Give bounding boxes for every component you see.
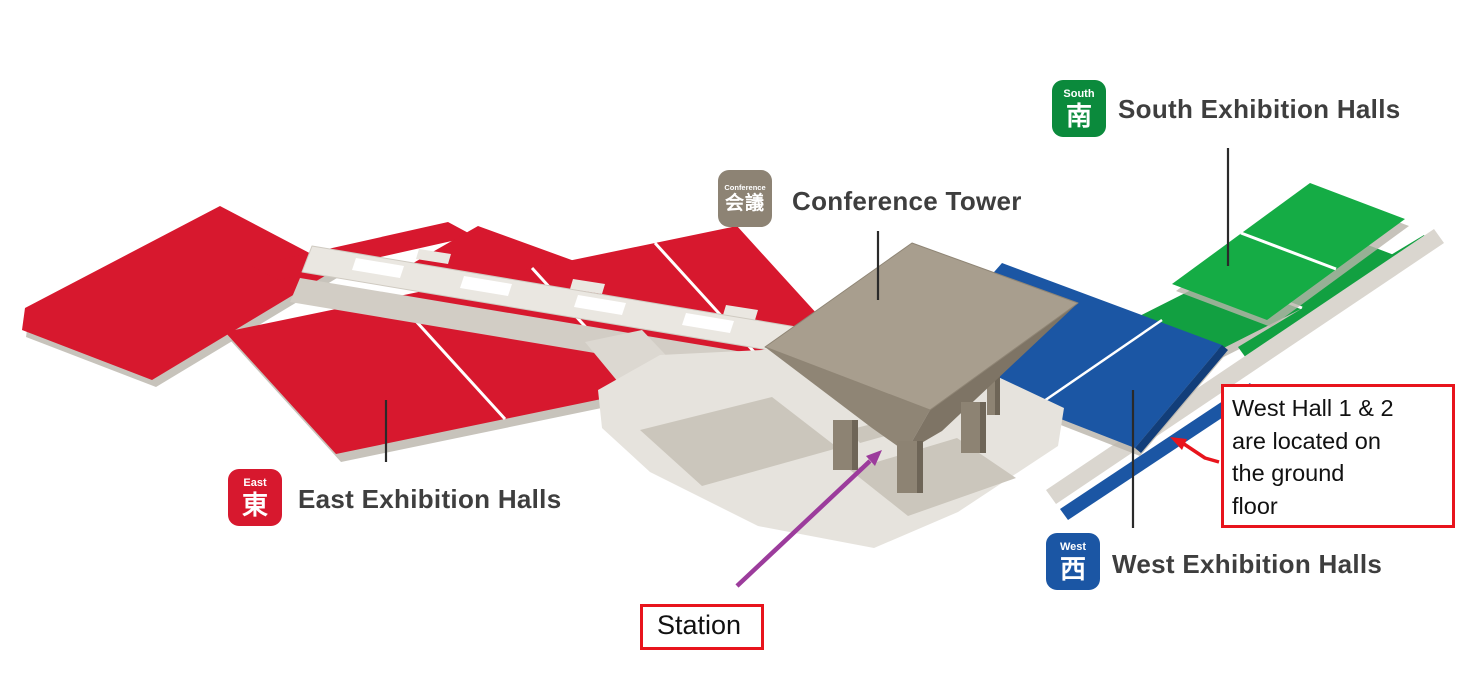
venue-map: South 南 Conference 会議 East 東 West 西 Sout…: [0, 0, 1476, 678]
south-badge-icon: South 南: [1052, 80, 1106, 137]
west-badge-icon: West 西: [1046, 533, 1100, 590]
south-badge-label: South: [1063, 89, 1094, 100]
east-badge-label: East: [243, 478, 266, 489]
conference-tower-title: Conference Tower: [792, 186, 1022, 217]
station-annotation-box: Station: [640, 604, 764, 650]
conference-badge-kanji: 会議: [725, 194, 765, 213]
south-badge-kanji: 南: [1066, 103, 1092, 129]
conference-badge-icon: Conference 会議: [718, 170, 772, 227]
east-badge-icon: East 東: [228, 469, 282, 526]
west-halls-title: West Exhibition Halls: [1112, 549, 1382, 580]
west-badge-label: West: [1060, 542, 1086, 553]
west-hall-note-arrow: [1170, 437, 1219, 462]
east-badge-kanji: 東: [242, 492, 268, 518]
west-hall-note-box: West Hall 1 & 2 are located on the groun…: [1221, 384, 1455, 528]
south-halls-title: South Exhibition Halls: [1118, 94, 1401, 125]
west-badge-kanji: 西: [1060, 556, 1086, 582]
east-halls-title: East Exhibition Halls: [298, 484, 561, 515]
conference-badge-label: Conference: [724, 184, 765, 192]
